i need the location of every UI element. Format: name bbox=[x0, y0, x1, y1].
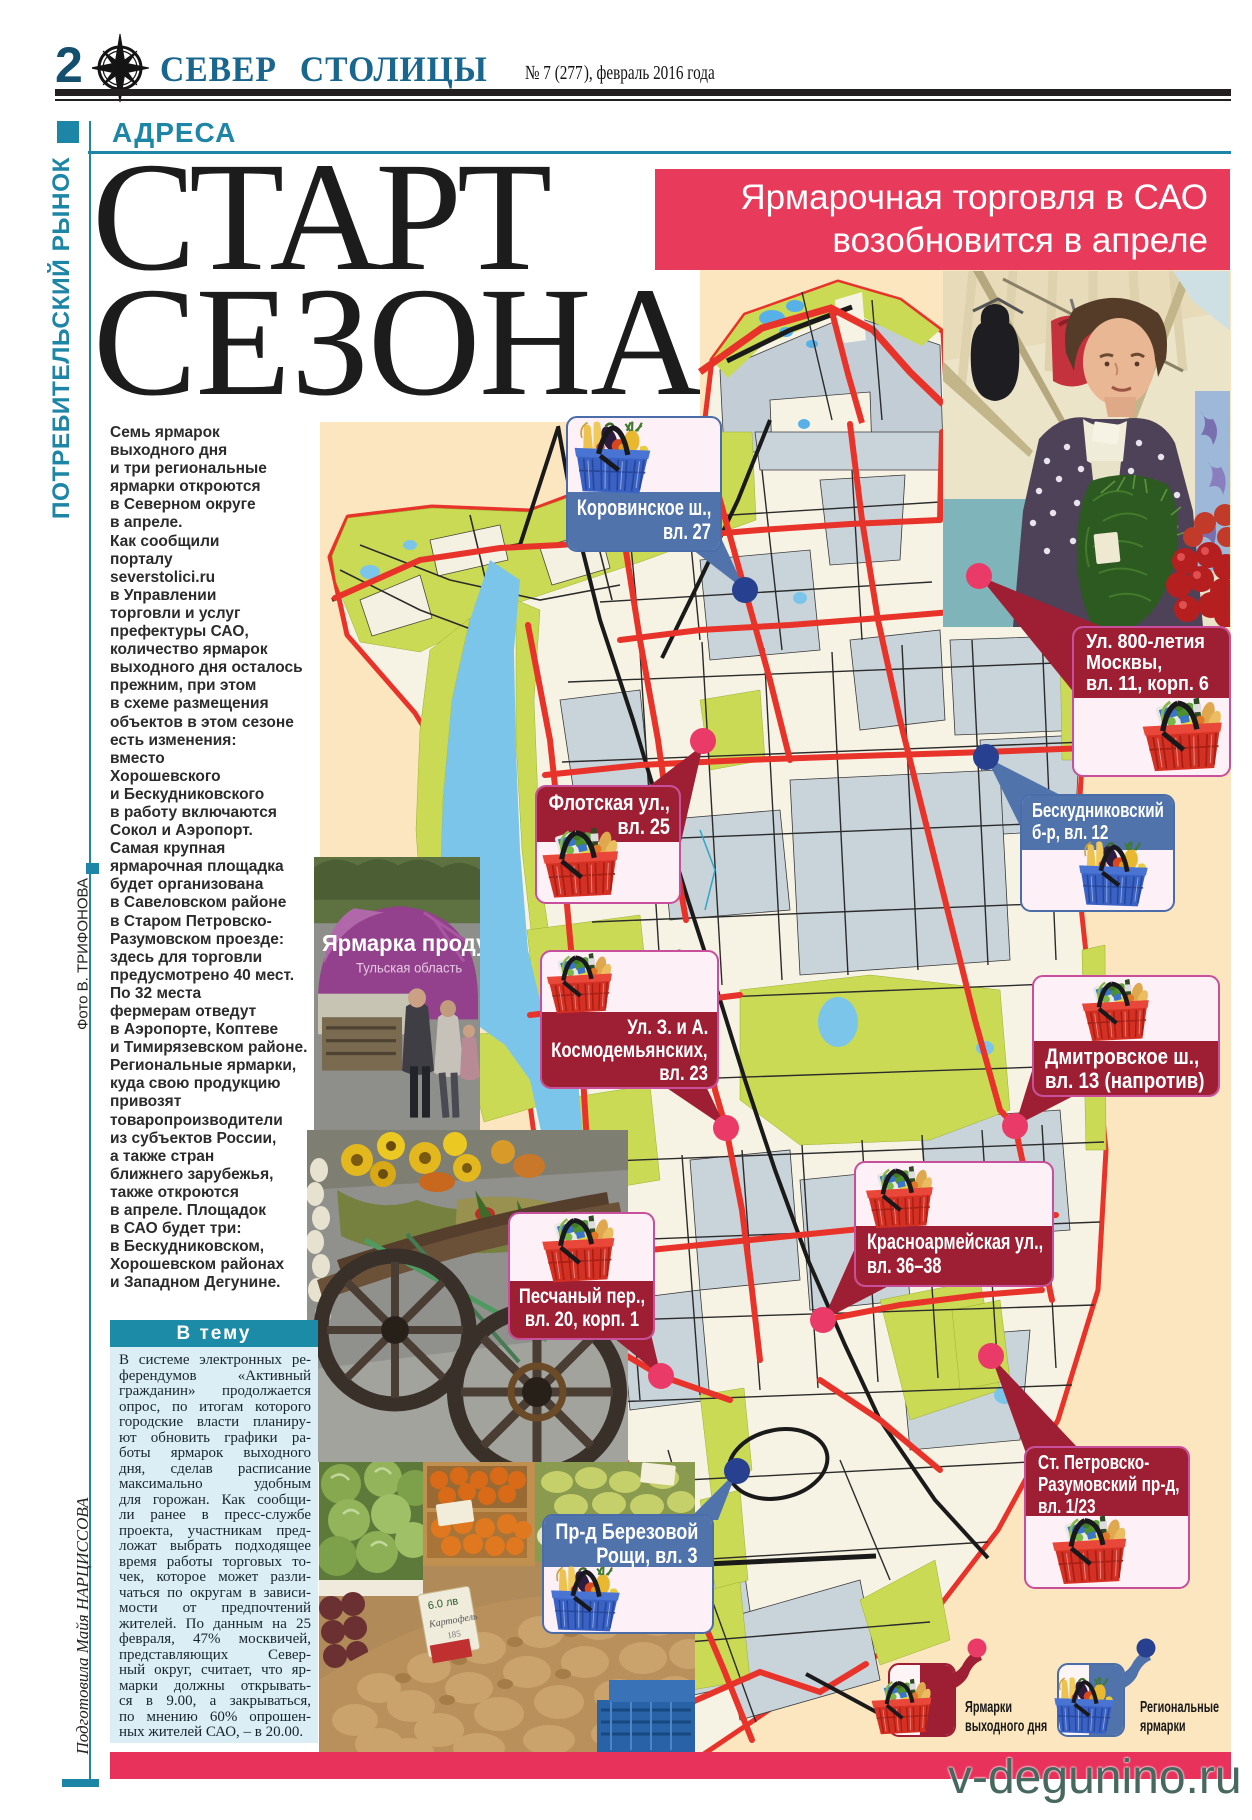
svg-text:Ярмарка проду: Ярмарка проду bbox=[322, 929, 480, 956]
svg-text:Тульская область: Тульская область bbox=[356, 960, 462, 975]
